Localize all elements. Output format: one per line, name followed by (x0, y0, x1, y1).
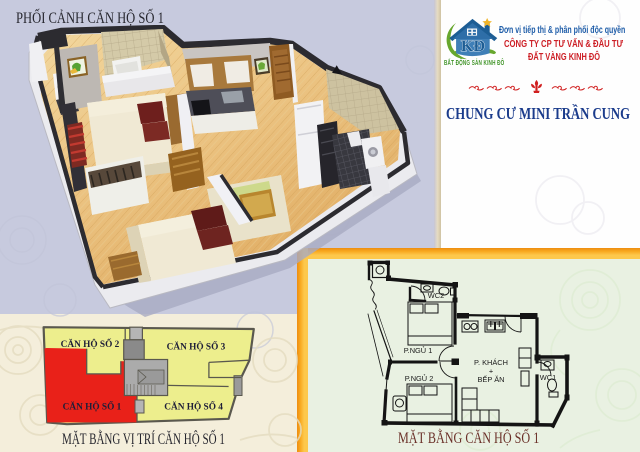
svg-text:P.NGỦ 1: P.NGỦ 1 (404, 346, 433, 355)
svg-text:WC1: WC1 (540, 373, 556, 382)
svg-text:P.NGỦ 2: P.NGỦ 2 (405, 374, 434, 383)
svg-text:KĐ: KĐ (461, 38, 485, 55)
svg-text:WC2: WC2 (428, 291, 444, 300)
svg-text:BẾP ĂN: BẾP ĂN (478, 374, 505, 384)
